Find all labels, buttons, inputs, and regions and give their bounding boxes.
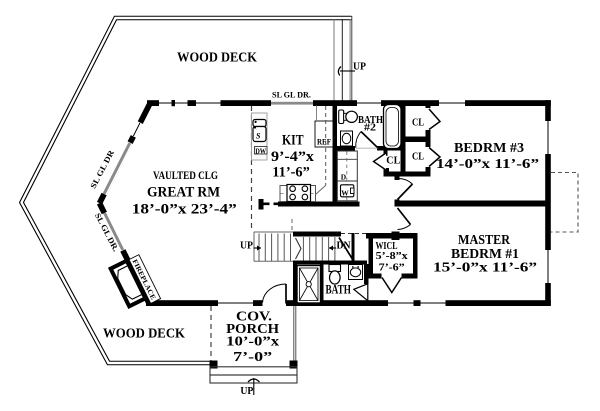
svg-text:S: S: [256, 132, 261, 141]
svg-text:DW: DW: [255, 146, 266, 155]
svg-text:18’-0”x 23’-4”: 18’-0”x 23’-4”: [132, 201, 237, 217]
svg-text:UP: UP: [240, 385, 253, 397]
svg-text:11’-6”: 11’-6”: [272, 164, 310, 180]
svg-text:W: W: [341, 188, 349, 197]
svg-text:D: D: [341, 173, 347, 182]
svg-text:CL: CL: [386, 156, 400, 167]
svg-text:7’-6”: 7’-6”: [379, 261, 405, 273]
svg-text:BEDRM #3: BEDRM #3: [454, 141, 524, 156]
svg-text:9’-4”x: 9’-4”x: [271, 149, 315, 165]
svg-text:CL: CL: [412, 151, 424, 162]
svg-text:VAULTED CLG: VAULTED CLG: [153, 170, 218, 182]
svg-text:MASTER: MASTER: [458, 233, 511, 248]
svg-text:SL GL DR.: SL GL DR.: [272, 89, 311, 99]
svg-text:15’-0”x 11’-6”: 15’-0”x 11’-6”: [433, 260, 537, 275]
svg-text:UP: UP: [240, 239, 253, 251]
svg-text:REF: REF: [317, 138, 331, 147]
svg-text:GREAT RM: GREAT RM: [147, 184, 220, 200]
svg-text:BATH: BATH: [325, 283, 351, 297]
svg-text:#2: #2: [364, 122, 377, 134]
svg-text:10’-0”x: 10’-0”x: [226, 333, 279, 348]
svg-text:7’-0”: 7’-0”: [233, 349, 272, 364]
svg-text:CL: CL: [412, 118, 424, 129]
svg-text:5’-8”x: 5’-8”x: [376, 250, 409, 262]
svg-text:WOOD DECK: WOOD DECK: [103, 327, 185, 342]
svg-text:14’-0”x 11’-6”: 14’-0”x 11’-6”: [436, 157, 539, 172]
svg-text:KIT: KIT: [282, 132, 304, 148]
svg-text:WOOD DECK: WOOD DECK: [177, 51, 257, 66]
